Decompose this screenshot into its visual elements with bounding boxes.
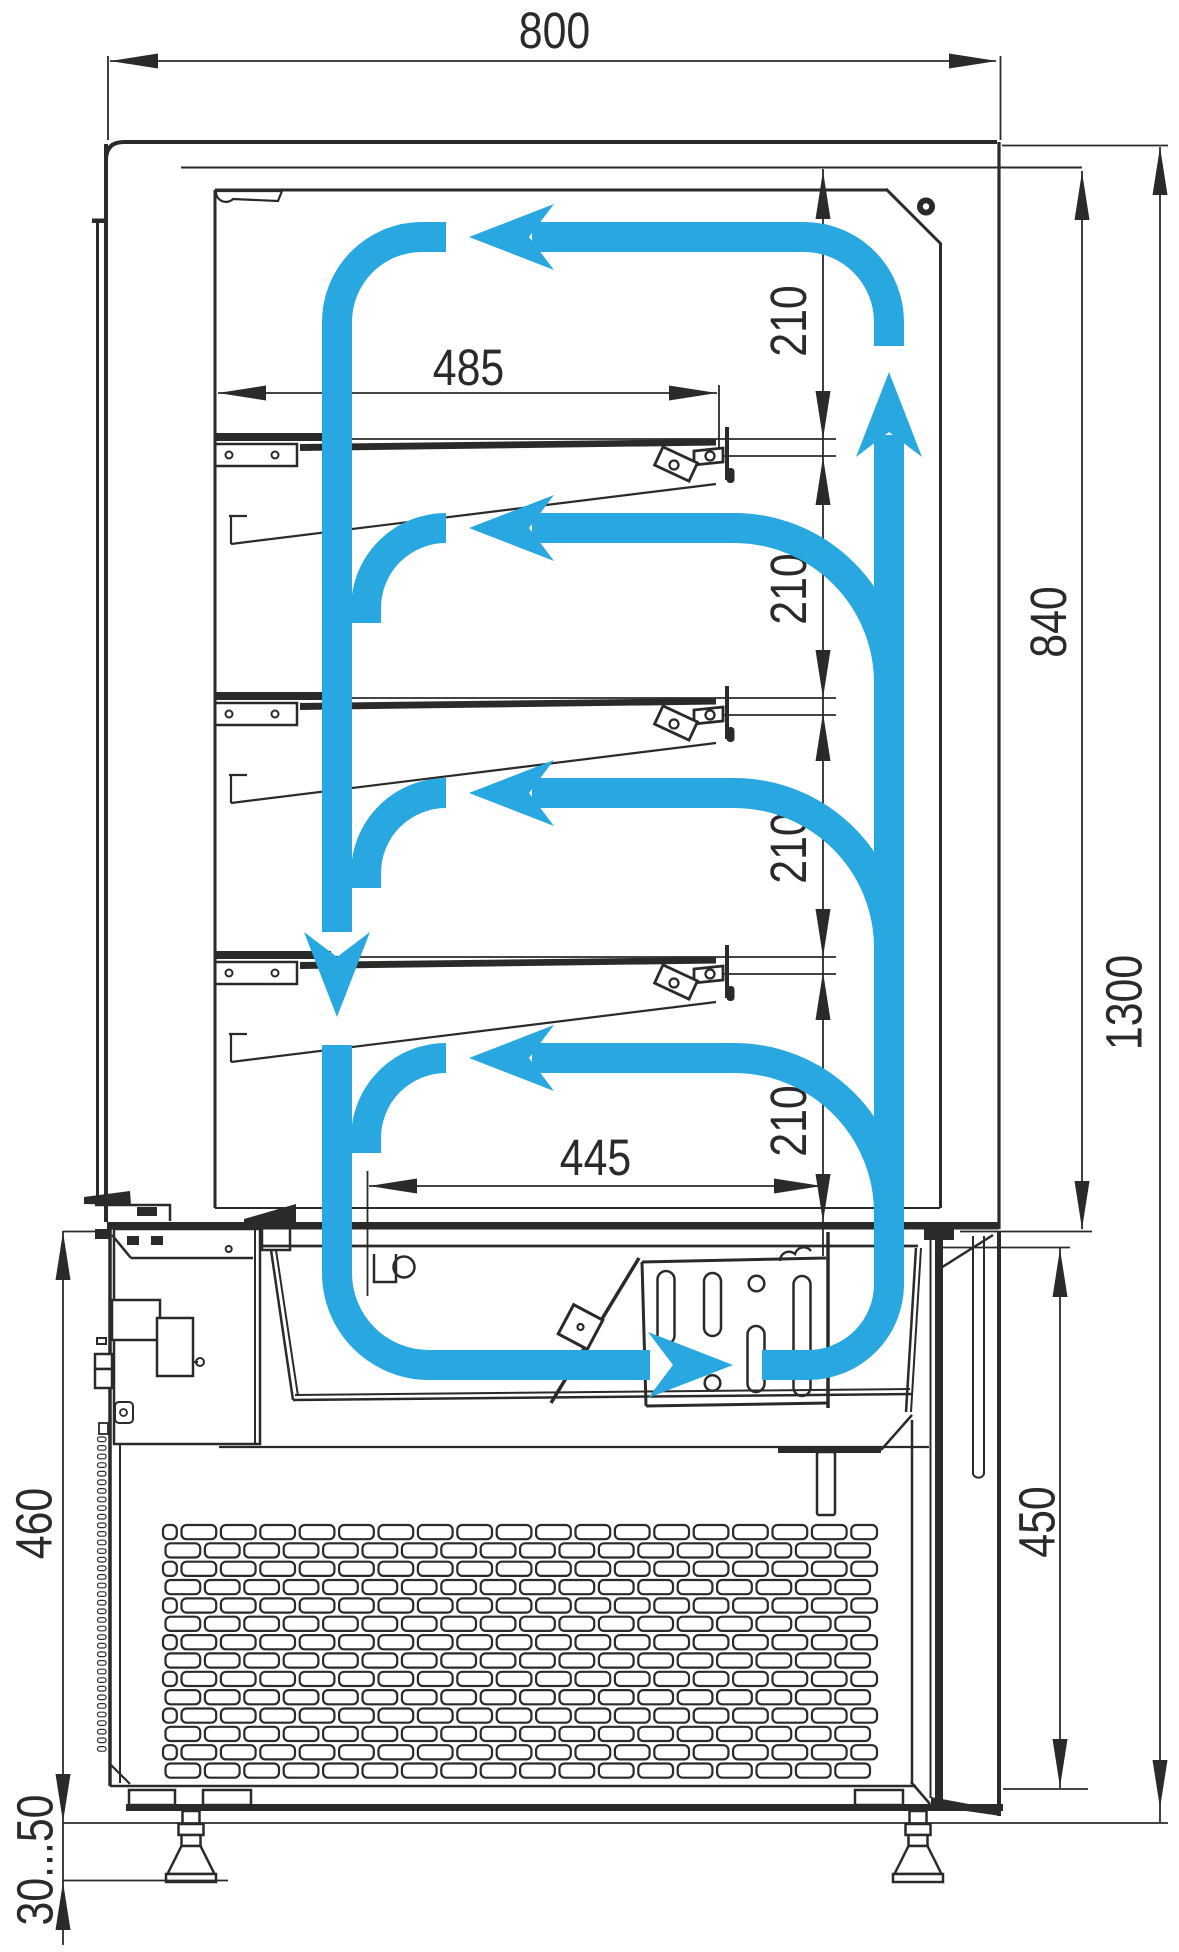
svg-text:840: 840: [1019, 586, 1076, 657]
svg-text:210: 210: [759, 1085, 816, 1156]
svg-text:445: 445: [560, 1128, 631, 1185]
svg-text:800: 800: [519, 1, 590, 58]
svg-text:485: 485: [433, 338, 504, 395]
svg-text:210: 210: [759, 285, 816, 356]
svg-text:30...50: 30...50: [6, 1795, 63, 1926]
svg-text:460: 460: [5, 1488, 62, 1559]
svg-text:1300: 1300: [1095, 955, 1152, 1050]
svg-text:450: 450: [1008, 1486, 1065, 1557]
